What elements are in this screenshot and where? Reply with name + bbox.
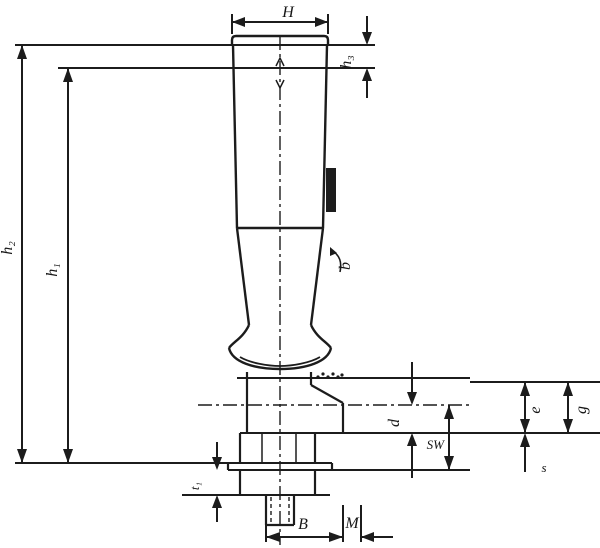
bell-flare-left [229, 325, 249, 348]
dimension-h2: h₂ [0, 45, 27, 463]
dimension-e: e [520, 382, 544, 433]
dimension-H: H [232, 4, 328, 27]
dim-label-H: H [281, 4, 295, 21]
dimension-SW: SW [427, 405, 454, 470]
technical-drawing-canvas: H h₃ h₂ h₁ b t₁ B [0, 0, 600, 548]
dim-label-e: e [527, 406, 544, 413]
bell-flare-right [311, 325, 331, 348]
side-clip [326, 168, 336, 212]
dim-label-SW: SW [427, 437, 446, 452]
dimension-M: M [344, 515, 393, 542]
dim-label-M: M [344, 515, 360, 532]
chamfer [311, 385, 343, 403]
dim-label-t1: t₁ [187, 482, 202, 490]
dimension-B: B [266, 516, 343, 542]
dimension-d: d [386, 362, 417, 478]
dim-label-d: d [386, 418, 403, 427]
dim-label-h3: h₃ [338, 55, 355, 69]
dimension-g: g [563, 382, 590, 433]
dim-label-h2: h₂ [0, 241, 16, 255]
dim-label-B: B [298, 516, 308, 533]
dim-label-g: g [573, 406, 590, 414]
dimension-s: s [520, 433, 547, 475]
dimension-h3: h₃ [338, 16, 372, 98]
center-lines [198, 36, 470, 545]
dimension-h1: h₁ [44, 68, 73, 463]
dimension-t1: t₁ [187, 442, 222, 522]
boss-and-flange [228, 372, 343, 525]
dim-label-b: b [337, 262, 354, 270]
dim-label-h1: h₁ [44, 263, 61, 277]
machine-handle-dimension-drawing: H h₃ h₂ h₁ b t₁ B [0, 0, 600, 548]
extension-lines [15, 14, 600, 542]
dim-label-s: s [541, 460, 546, 475]
